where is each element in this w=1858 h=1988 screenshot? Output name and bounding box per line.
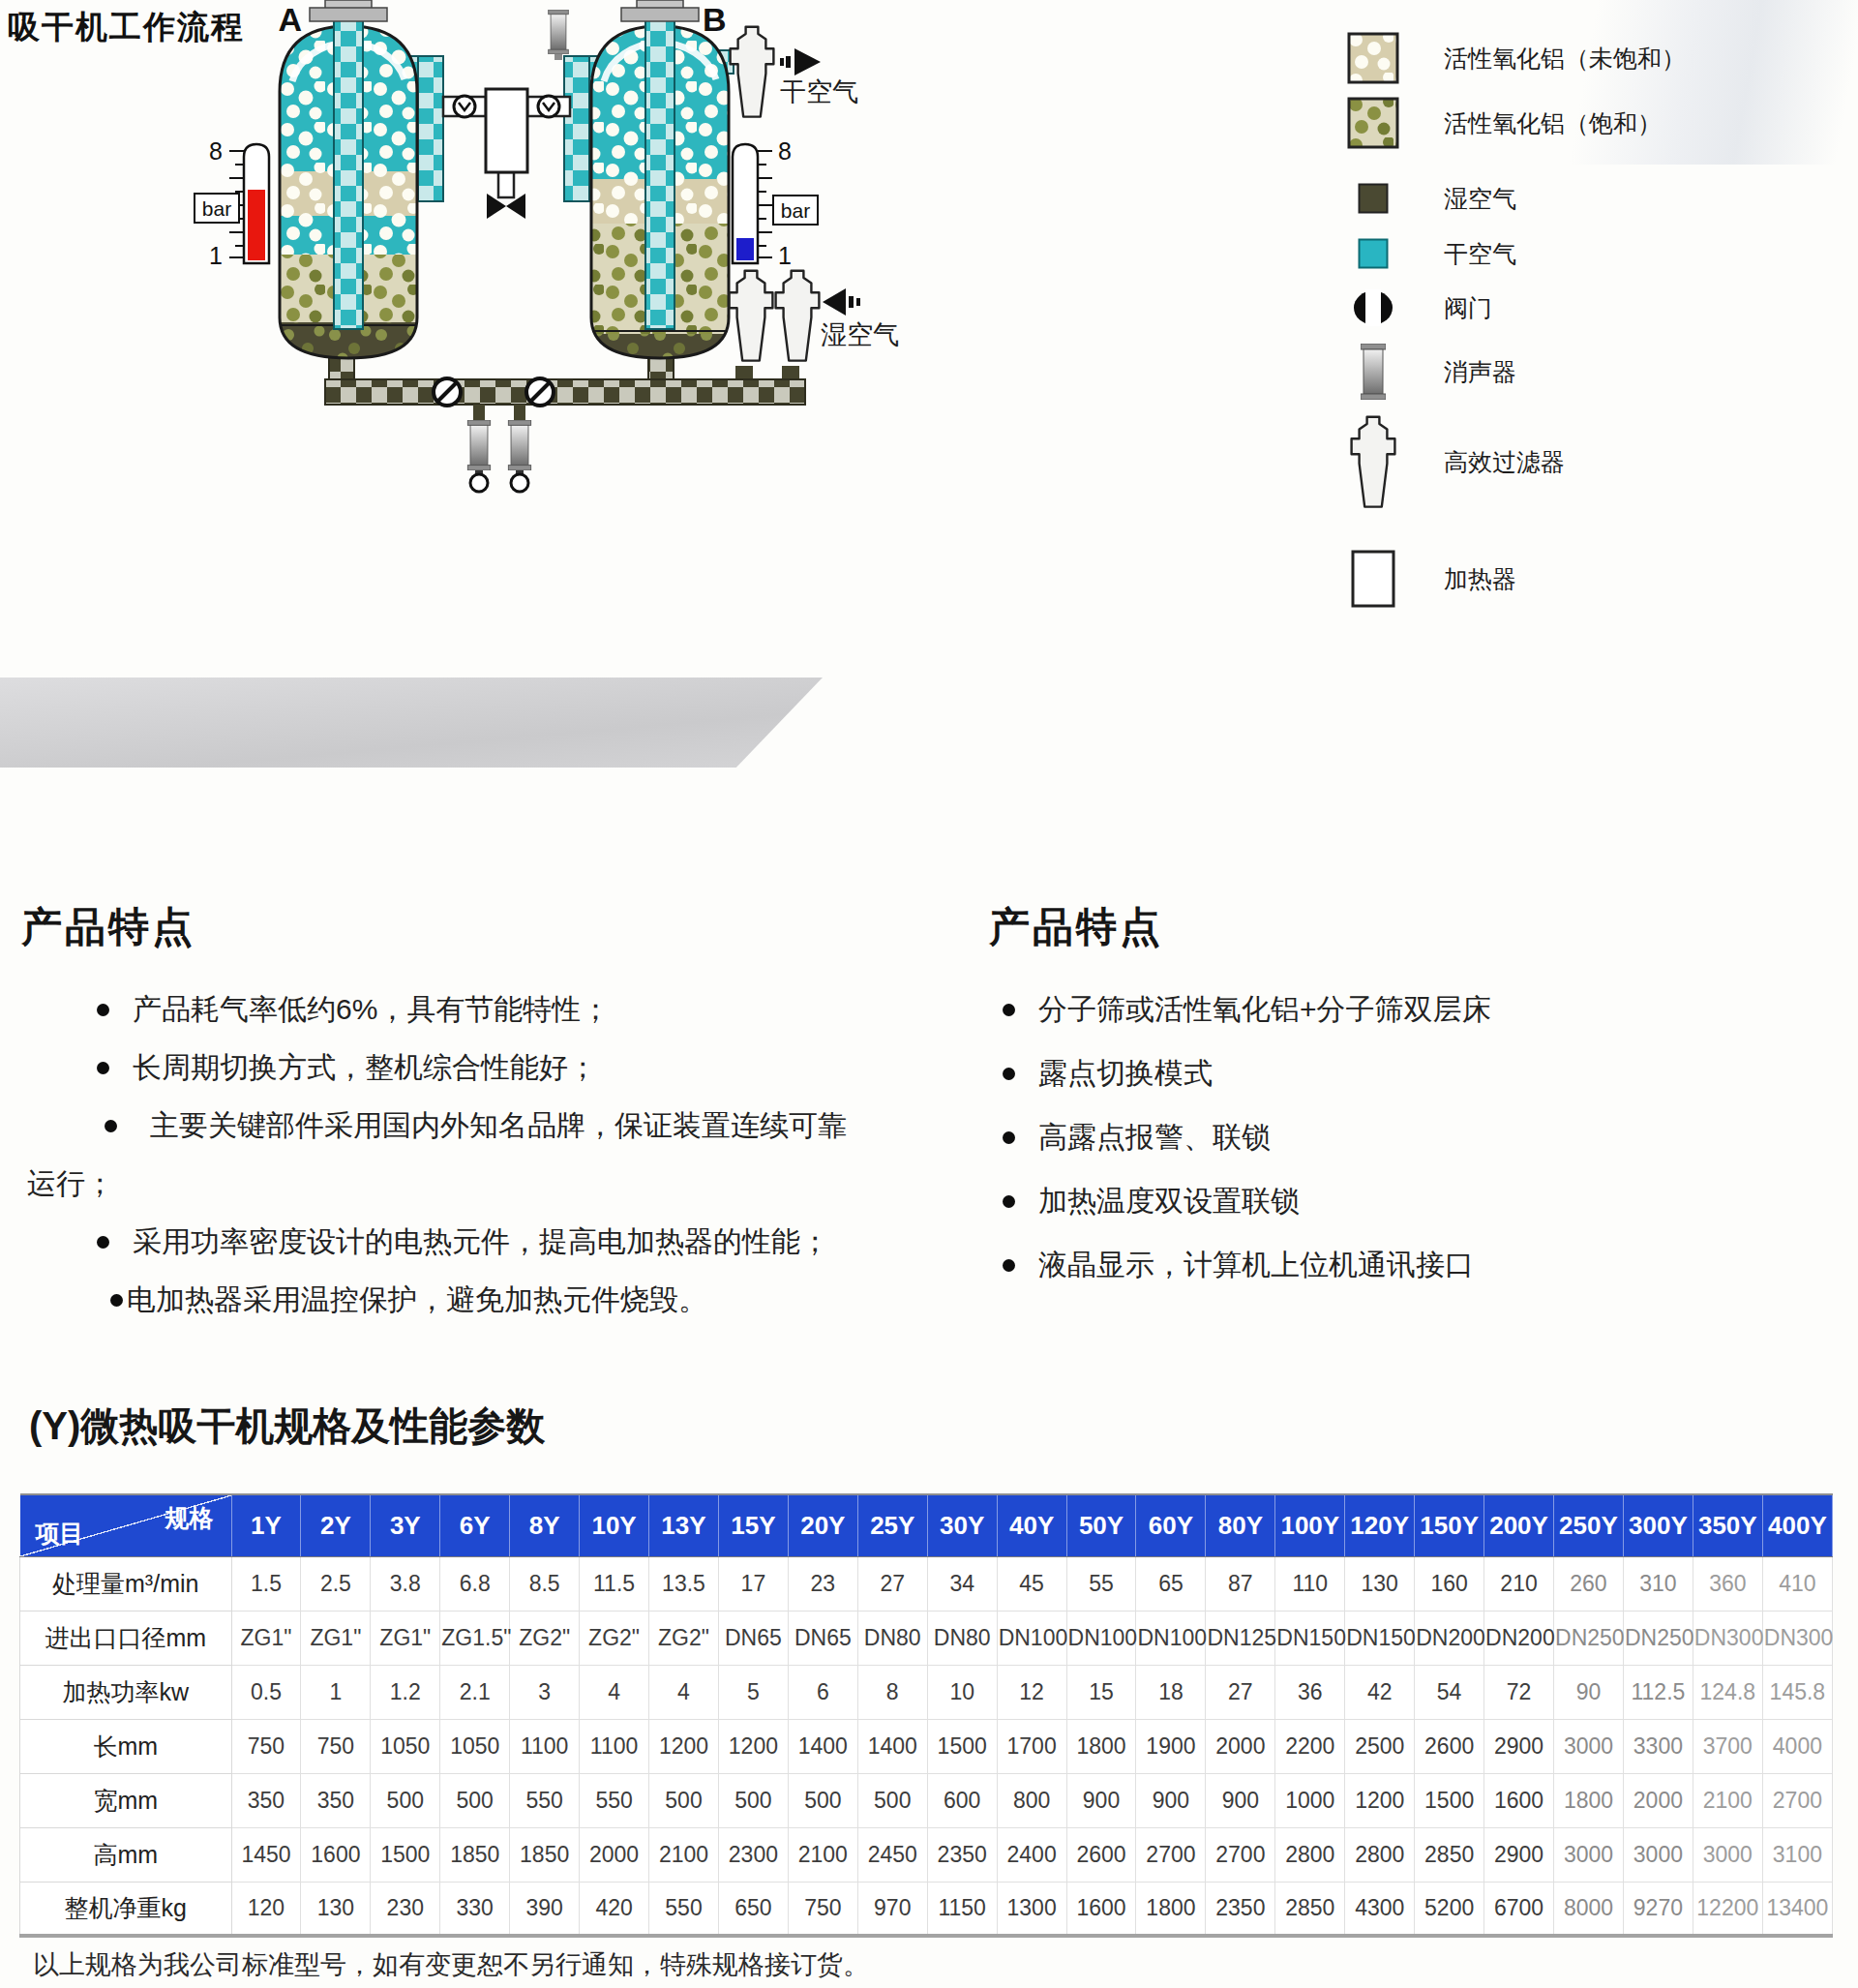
spec-cell: 27: [1206, 1665, 1275, 1719]
spec-cell: 55: [1066, 1556, 1136, 1611]
spec-cell: DN100: [1066, 1611, 1136, 1665]
process-diagram: A B 8 1 bar: [0, 0, 1026, 542]
bullet-icon: [97, 1004, 109, 1016]
spec-cell: 1000: [1275, 1773, 1345, 1827]
spec-cell: 2000: [1623, 1773, 1693, 1827]
spec-table-title: (Y)微热吸干机规格及性能参数: [29, 1400, 545, 1453]
model-column-header: 15Y: [718, 1494, 788, 1556]
spec-row: 加热功率kw0.511.22.1344568101215182736425472…: [20, 1665, 1833, 1719]
bullet-icon: [97, 1062, 109, 1074]
vessel-b: [591, 0, 729, 358]
model-column-header: 25Y: [857, 1494, 927, 1556]
spec-cell: 1800: [1136, 1882, 1206, 1936]
spec-cell: 87: [1206, 1556, 1275, 1611]
spec-table: 规格 项目 1Y2Y3Y6Y8Y10Y13Y15Y20Y25Y30Y40Y50Y…: [19, 1493, 1833, 1938]
bar-label: bar: [202, 197, 231, 220]
spec-cell: 310: [1623, 1556, 1693, 1611]
spec-cell: 900: [1206, 1773, 1275, 1827]
spec-cell: 11.5: [580, 1556, 649, 1611]
spec-row: 进出口口径mmZG1"ZG1"ZG1"ZG1.5"ZG2"ZG2"ZG2"DN6…: [20, 1611, 1833, 1665]
spec-cell: 3700: [1693, 1719, 1762, 1773]
bottom-piping: [325, 350, 805, 492]
spec-cell: 0.5: [231, 1665, 301, 1719]
spec-table-body: 处理量m³/min1.52.53.86.88.511.513.517232734…: [20, 1556, 1833, 1936]
model-column-header: 50Y: [1066, 1494, 1136, 1556]
wet-air-arrow: [823, 288, 846, 316]
riser-pipe: [645, 10, 674, 329]
spec-cell: 6.8: [440, 1556, 510, 1611]
spec-cell: ZG2": [510, 1611, 580, 1665]
model-column-header: 3Y: [371, 1494, 440, 1556]
top-muffler: [549, 10, 569, 54]
spec-cell: 90: [1554, 1665, 1624, 1719]
spec-cell: 230: [371, 1882, 440, 1936]
feature-item: 采用功率密度设计的电热元件，提高电加热器的性能；: [97, 1225, 941, 1258]
spec-row-label: 整机净重kg: [20, 1882, 232, 1936]
spec-cell: 3100: [1762, 1827, 1832, 1882]
spec-cell: 54: [1415, 1665, 1484, 1719]
spec-cell: 1: [301, 1665, 371, 1719]
spec-cell: 34: [927, 1556, 997, 1611]
spec-cell: DN80: [927, 1611, 997, 1665]
legend-item: 活性氧化铝（未饱和）: [1345, 32, 1858, 84]
feature-item: 露点切换模式: [1003, 1057, 1531, 1090]
feature-item: 液晶显示，计算机上位机通讯接口: [1003, 1249, 1531, 1281]
spec-cell: 2850: [1275, 1882, 1345, 1936]
spec-row: 宽mm3503505005005505505005005005006008009…: [20, 1773, 1833, 1827]
model-column-header: 20Y: [788, 1494, 857, 1556]
spec-cell: 9270: [1623, 1882, 1693, 1936]
spec-cell: 410: [1762, 1556, 1832, 1611]
legend-label: 消声器: [1444, 356, 1516, 388]
model-column-header: 10Y: [580, 1494, 649, 1556]
spec-row: 处理量m³/min1.52.53.86.88.511.513.517232734…: [20, 1556, 1833, 1611]
spec-cell: 2900: [1484, 1827, 1554, 1882]
spec-cell: 5: [718, 1665, 788, 1719]
spec-cell: 8: [857, 1665, 927, 1719]
spec-cell: DN150: [1275, 1611, 1345, 1665]
spec-cell: 2100: [788, 1827, 857, 1882]
legend-item: 干空气: [1345, 239, 1858, 268]
heater: [486, 89, 527, 172]
spec-cell: 1600: [1484, 1773, 1554, 1827]
spec-cell: 1200: [1345, 1773, 1415, 1827]
spec-cell: 124.8: [1693, 1665, 1762, 1719]
spec-cell: 65: [1136, 1556, 1206, 1611]
spec-cell: 2000: [1206, 1719, 1275, 1773]
spec-cell: ZG1.5": [440, 1611, 510, 1665]
spec-cell: 970: [857, 1882, 927, 1936]
bullet-icon: [1003, 1259, 1015, 1272]
spec-cell: 2350: [927, 1827, 997, 1882]
model-column-header: 13Y: [649, 1494, 719, 1556]
spec-row: 长mm7507501050105011001100120012001400140…: [20, 1719, 1833, 1773]
spec-cell: DN65: [788, 1611, 857, 1665]
legend-label: 活性氧化铝（未饱和）: [1444, 43, 1686, 75]
vessel-b-label: B: [703, 1, 727, 38]
model-column-header: 30Y: [927, 1494, 997, 1556]
spec-cell: 2350: [1206, 1882, 1275, 1936]
spec-cell: DN65: [718, 1611, 788, 1665]
spec-cell: DN200: [1415, 1611, 1484, 1665]
bullet-icon: [110, 1294, 123, 1307]
spec-cell: 110: [1275, 1556, 1345, 1611]
riser-pipe: [334, 10, 363, 329]
spec-cell: 550: [510, 1773, 580, 1827]
spec-cell: DN100: [997, 1611, 1066, 1665]
spec-cell: 45: [997, 1556, 1066, 1611]
model-column-header: 8Y: [510, 1494, 580, 1556]
spec-cell: 1600: [301, 1827, 371, 1882]
spec-cell: 750: [788, 1882, 857, 1936]
spec-row-label: 长mm: [20, 1719, 232, 1773]
spec-cell: 750: [231, 1719, 301, 1773]
model-column-header: 150Y: [1415, 1494, 1484, 1556]
spec-cell: ZG1": [231, 1611, 301, 1665]
spec-cell: 2700: [1206, 1827, 1275, 1882]
spec-cell: 1800: [1066, 1719, 1136, 1773]
features-left-list: 产品耗气率低约6%，具有节能特性； 长周期切换方式，整机综合性能好； 主要关键部…: [21, 993, 941, 1316]
model-column-header: 350Y: [1693, 1494, 1762, 1556]
spec-cell: 500: [857, 1773, 927, 1827]
spec-cell: 900: [1136, 1773, 1206, 1827]
spec-cell: 2800: [1275, 1827, 1345, 1882]
bullet-icon: [1003, 1004, 1015, 1016]
spec-cell: 1850: [440, 1827, 510, 1882]
spec-cell: 350: [231, 1773, 301, 1827]
spec-cell: 1100: [510, 1719, 580, 1773]
spec-cell: 1.5: [231, 1556, 301, 1611]
bullet-icon: [97, 1236, 109, 1249]
muffler: [508, 420, 530, 470]
spec-cell: DN80: [857, 1611, 927, 1665]
spec-cell: 3300: [1623, 1719, 1693, 1773]
spec-cell: 1700: [997, 1719, 1066, 1773]
legend-item: 湿空气: [1345, 184, 1858, 213]
gauge-fill-blue: [736, 238, 754, 260]
wet-air-inlet: 湿空气: [730, 271, 899, 361]
spec-cell: 2600: [1066, 1827, 1136, 1882]
drain-valve: [470, 474, 488, 492]
spec-cell: DN200: [1484, 1611, 1554, 1665]
spec-cell: 360: [1693, 1556, 1762, 1611]
spec-cell: 130: [1345, 1556, 1415, 1611]
spec-row-label: 加热功率kw: [20, 1665, 232, 1719]
spec-cell: 8000: [1554, 1882, 1624, 1936]
spec-table-header-row: 规格 项目 1Y2Y3Y6Y8Y10Y13Y15Y20Y25Y30Y40Y50Y…: [20, 1494, 1833, 1556]
spec-cell: 8.5: [510, 1556, 580, 1611]
muffler-icon: [1345, 344, 1401, 400]
legend-label: 加热器: [1444, 563, 1516, 595]
spec-cell: 1050: [440, 1719, 510, 1773]
spec-cell: 2400: [997, 1827, 1066, 1882]
spec-cell: 4: [580, 1665, 649, 1719]
spec-cell: 1400: [788, 1719, 857, 1773]
model-column-header: 120Y: [1345, 1494, 1415, 1556]
spec-cell: DN100: [1136, 1611, 1206, 1665]
outlet-filter: [731, 27, 774, 117]
spec-cell: 900: [1066, 1773, 1136, 1827]
spec-cell: ZG1": [371, 1611, 440, 1665]
spec-row-label: 处理量m³/min: [20, 1556, 232, 1611]
spec-cell: 2450: [857, 1827, 927, 1882]
dry-air-arrow: [794, 48, 821, 75]
spec-cell: 350: [301, 1773, 371, 1827]
legend-label: 干空气: [1444, 238, 1516, 270]
spec-cell: 1200: [649, 1719, 719, 1773]
spec-cell: 120: [231, 1882, 301, 1936]
spec-cell: 500: [718, 1773, 788, 1827]
spec-cell: 1500: [927, 1719, 997, 1773]
spec-cell: 550: [649, 1882, 719, 1936]
spec-cell: 2300: [718, 1827, 788, 1882]
spec-cell: 2.5: [301, 1556, 371, 1611]
flange: [310, 8, 387, 21]
spec-cell: 1300: [997, 1882, 1066, 1936]
divider-band: [0, 678, 823, 768]
model-column-header: 300Y: [1623, 1494, 1693, 1556]
spec-cell: 72: [1484, 1665, 1554, 1719]
spec-cell: DN300: [1762, 1611, 1832, 1665]
spec-cell: 2100: [1693, 1773, 1762, 1827]
spec-cell: 3000: [1554, 1719, 1624, 1773]
diagram-legend: 活性氧化铝（未饱和） 活性氧化铝（饱和） 湿空气 干空气 阀门 消声器 高效: [1345, 27, 1858, 647]
spec-cell: 750: [301, 1719, 371, 1773]
spec-cell: ZG1": [301, 1611, 371, 1665]
legend-item: 阀门: [1345, 288, 1858, 327]
spec-cell: 1800: [1554, 1773, 1624, 1827]
spec-cell: 2100: [649, 1827, 719, 1882]
model-column-header: 400Y: [1762, 1494, 1832, 1556]
feature-item: 高露点报警、联锁: [1003, 1121, 1531, 1154]
legend-item: 活性氧化铝（饱和）: [1345, 97, 1858, 149]
feature-item: 分子筛或活性氧化铝+分子筛双层床: [1003, 993, 1531, 1026]
bullet-icon: [1003, 1195, 1015, 1208]
spec-cell: 800: [997, 1773, 1066, 1827]
spec-cell: 2200: [1275, 1719, 1345, 1773]
model-column-header: 2Y: [301, 1494, 371, 1556]
spec-cell: 1.2: [371, 1665, 440, 1719]
heater-icon: [1345, 550, 1401, 608]
spec-cell: 650: [718, 1882, 788, 1936]
spec-cell: 2800: [1345, 1827, 1415, 1882]
spec-cell: 18: [1136, 1665, 1206, 1719]
vessel-a-label: A: [278, 1, 302, 38]
spec-cell: DN150: [1345, 1611, 1415, 1665]
spec-cell: 3000: [1623, 1827, 1693, 1882]
spec-cell: 12: [997, 1665, 1066, 1719]
corner-cell: 规格 项目: [20, 1494, 232, 1556]
spec-cell: 6700: [1484, 1882, 1554, 1936]
spec-cell: 145.8: [1762, 1665, 1832, 1719]
alumina-unsaturated-swatch: [1345, 32, 1401, 84]
spec-cell: 2700: [1136, 1827, 1206, 1882]
spec-cell: 420: [580, 1882, 649, 1936]
wet-air-label: 湿空气: [821, 320, 899, 349]
spec-row-label: 宽mm: [20, 1773, 232, 1827]
spec-cell: 1600: [1066, 1882, 1136, 1936]
model-column-header: 250Y: [1554, 1494, 1624, 1556]
spec-cell: DN250: [1623, 1611, 1693, 1665]
right-gauge: 8 1 bar: [733, 137, 818, 269]
spec-row: 高mm1450160015001850185020002100230021002…: [20, 1827, 1833, 1882]
spec-cell: ZG2": [649, 1611, 719, 1665]
valve: [454, 96, 475, 117]
feature-item-continuation: 运行；: [27, 1167, 941, 1200]
spec-cell: 17: [718, 1556, 788, 1611]
dry-air-swatch: [1345, 238, 1401, 269]
gauge-fill-red: [248, 190, 265, 260]
spec-cell: 3000: [1554, 1827, 1624, 1882]
spec-row-label: 进出口口径mm: [20, 1611, 232, 1665]
model-column-header: 1Y: [231, 1494, 301, 1556]
spec-cell: 3.8: [371, 1556, 440, 1611]
spec-cell: 160: [1415, 1556, 1484, 1611]
spec-cell: 2500: [1345, 1719, 1415, 1773]
inlet-filter: [776, 271, 820, 361]
corner-spec-label: 规格: [165, 1502, 214, 1534]
bullet-icon: [1003, 1068, 1015, 1080]
model-column-header: 200Y: [1484, 1494, 1554, 1556]
spec-cell: 1500: [371, 1827, 440, 1882]
spec-cell: 1400: [857, 1719, 927, 1773]
dry-air-label: 干空气: [780, 77, 858, 106]
spec-cell: 2850: [1415, 1827, 1484, 1882]
spec-cell: 1100: [580, 1719, 649, 1773]
spec-cell: 6: [788, 1665, 857, 1719]
inlet-filter: [730, 271, 773, 361]
spec-cell: 130: [301, 1882, 371, 1936]
bullet-icon: [105, 1120, 117, 1132]
spec-cell: 1200: [718, 1719, 788, 1773]
gauge-min-label: 1: [778, 242, 792, 269]
spec-cell: 4000: [1762, 1719, 1832, 1773]
vessel-a: [280, 0, 417, 358]
bar-label: bar: [781, 199, 810, 222]
spec-cell: 2900: [1484, 1719, 1554, 1773]
alumina-saturated-swatch: [1345, 97, 1401, 149]
dry-air-outlet: 干空气: [731, 27, 858, 117]
spec-cell: 1500: [1415, 1773, 1484, 1827]
features-left: 产品特点 产品耗气率低约6%，具有节能特性； 长周期切换方式，整机综合性能好； …: [21, 900, 941, 1341]
model-column-header: 100Y: [1275, 1494, 1345, 1556]
regeneration-loop: [443, 10, 570, 219]
corner-item-label: 项目: [36, 1518, 84, 1550]
features-right-list: 分子筛或活性氧化铝+分子筛双层床 露点切换模式 高露点报警、联锁 加热温度双设置…: [989, 993, 1531, 1281]
spec-cell: 27: [857, 1556, 927, 1611]
spec-cell: 4300: [1345, 1882, 1415, 1936]
spec-cell: 1900: [1136, 1719, 1206, 1773]
gauge-min-label: 1: [209, 242, 223, 269]
spec-cell: 2700: [1762, 1773, 1832, 1827]
spec-cell: 1150: [927, 1882, 997, 1936]
spec-cell: 23: [788, 1556, 857, 1611]
spec-cell: DN250: [1554, 1611, 1624, 1665]
spec-cell: 3000: [1693, 1827, 1762, 1882]
filter-icon: [1345, 413, 1401, 512]
legend-label: 高效过滤器: [1444, 446, 1565, 478]
legend-label: 湿空气: [1444, 183, 1516, 215]
feature-item: 电加热器采用温控保护，避免加热元件烧毁。: [110, 1283, 941, 1316]
feature-item: 主要关键部件采用国内外知名品牌，保证装置连续可靠: [105, 1109, 941, 1142]
features-right: 产品特点 分子筛或活性氧化铝+分子筛双层床 露点切换模式 高露点报警、联锁 加热…: [989, 900, 1531, 1312]
spec-cell: 210: [1484, 1556, 1554, 1611]
gauge-max-label: 8: [778, 137, 792, 165]
spec-cell: 2000: [580, 1827, 649, 1882]
bullet-icon: [1003, 1131, 1015, 1144]
legend-item: 消声器: [1345, 344, 1858, 400]
model-column-header: 40Y: [997, 1494, 1066, 1556]
model-column-header: 80Y: [1206, 1494, 1275, 1556]
valve: [538, 96, 559, 117]
features-left-heading: 产品特点: [21, 900, 941, 954]
flange: [621, 8, 699, 21]
spec-cell: 112.5: [1623, 1665, 1693, 1719]
spec-row: 整机净重kg1201302303303904205506507509701150…: [20, 1882, 1833, 1936]
spec-cell: 600: [927, 1773, 997, 1827]
spec-cell: 4: [649, 1665, 719, 1719]
spec-cell: 10: [927, 1665, 997, 1719]
spec-cell: 500: [440, 1773, 510, 1827]
model-column-header: 60Y: [1136, 1494, 1206, 1556]
spec-cell: DN300: [1693, 1611, 1762, 1665]
spec-cell: 42: [1345, 1665, 1415, 1719]
drain-valve: [511, 474, 528, 492]
spec-cell: 3: [510, 1665, 580, 1719]
muffler: [467, 420, 490, 470]
wet-air-swatch: [1345, 183, 1401, 214]
spec-cell: 13400: [1762, 1882, 1832, 1936]
spec-cell: DN125: [1206, 1611, 1275, 1665]
spec-cell: 260: [1554, 1556, 1624, 1611]
model-column-header: 6Y: [440, 1494, 510, 1556]
left-gauge: 8 1 bar: [195, 137, 269, 269]
footer-note: 以上规格为我公司标准型号，如有变更恕不另行通知，特殊规格接订货。: [33, 1947, 869, 1982]
spec-cell: 500: [371, 1773, 440, 1827]
feature-item: 长周期切换方式，整机综合性能好；: [97, 1051, 941, 1084]
valve-icon: [1345, 289, 1401, 326]
spec-cell: 550: [580, 1773, 649, 1827]
spec-cell: 12200: [1693, 1882, 1762, 1936]
features-right-heading: 产品特点: [989, 900, 1531, 954]
feature-item: 加热温度双设置联锁: [1003, 1185, 1531, 1218]
spec-cell: 2.1: [440, 1665, 510, 1719]
spec-cell: ZG2": [580, 1611, 649, 1665]
legend-item: 高效过滤器: [1345, 411, 1858, 513]
spec-cell: 500: [649, 1773, 719, 1827]
spec-cell: 15: [1066, 1665, 1136, 1719]
legend-label: 阀门: [1444, 292, 1492, 324]
legend-item: 加热器: [1345, 550, 1858, 608]
spec-cell: 1450: [231, 1827, 301, 1882]
spec-cell: 500: [788, 1773, 857, 1827]
spec-cell: 5200: [1415, 1882, 1484, 1936]
feature-item: 产品耗气率低约6%，具有节能特性；: [97, 993, 941, 1026]
gauge-max-label: 8: [209, 137, 223, 165]
spec-cell: 1850: [510, 1827, 580, 1882]
spec-row-label: 高mm: [20, 1827, 232, 1882]
spec-cell: 390: [510, 1882, 580, 1936]
spec-cell: 330: [440, 1882, 510, 1936]
spec-cell: 1050: [371, 1719, 440, 1773]
legend-label: 活性氧化铝（饱和）: [1444, 107, 1662, 139]
spec-cell: 2600: [1415, 1719, 1484, 1773]
spec-cell: 36: [1275, 1665, 1345, 1719]
spec-cell: 13.5: [649, 1556, 719, 1611]
